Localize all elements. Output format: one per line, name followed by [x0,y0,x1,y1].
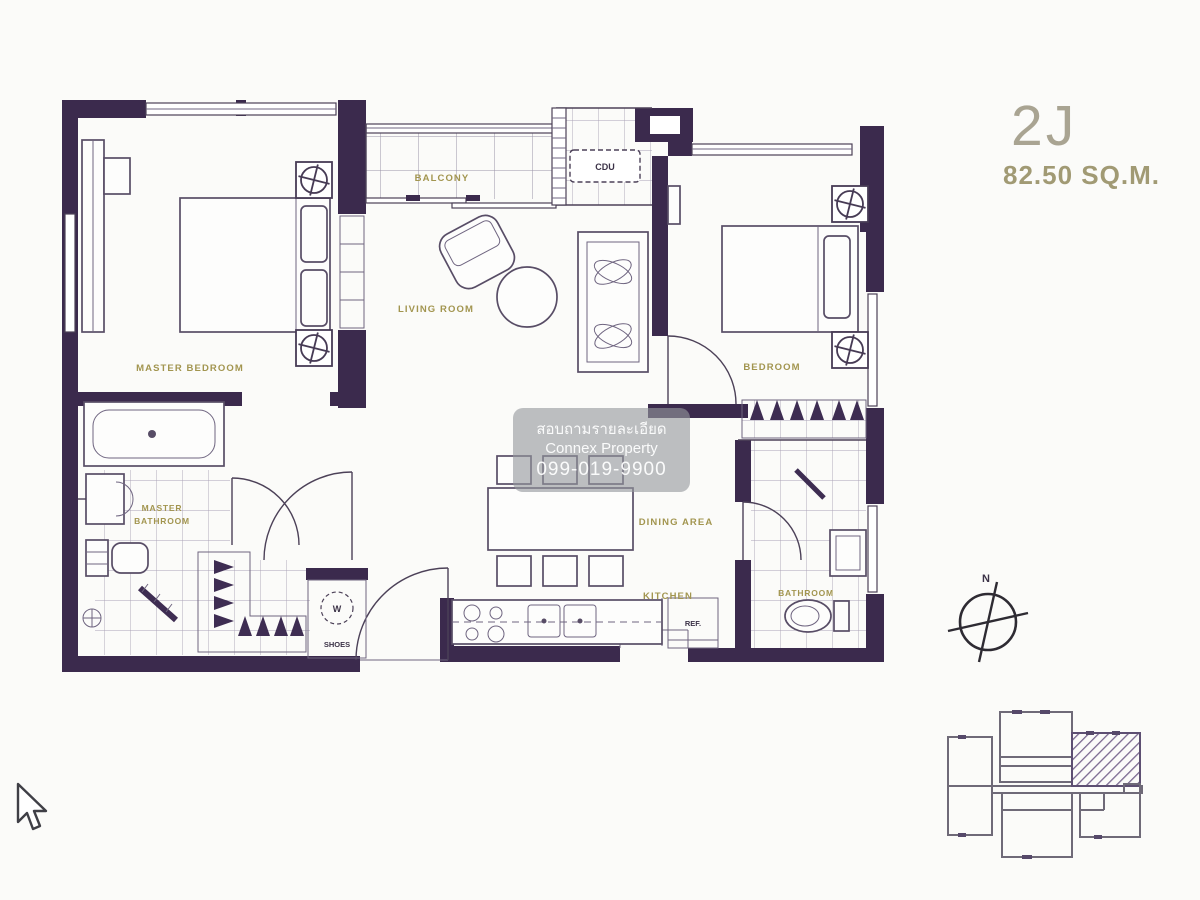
kitchen-counter [452,598,718,648]
floorplan-page: { "title": { "unit": "2J", "area": "82.5… [0,0,1200,900]
room-label-living-room: LIVING ROOM [398,304,474,315]
compass-north-label: N [982,573,990,585]
mouse-cursor-icon [12,780,56,838]
unit-area: 82.50 SQ.M. [1003,160,1193,191]
label-ref: REF. [685,619,701,628]
building-key-plan [948,710,1142,859]
compass-rose: N [948,573,1028,662]
room-label-balcony: BALCONY [415,173,470,184]
watermark-company: Connex Property [545,439,658,458]
room-label-master-bathroom-2: BATHROOM [134,516,190,526]
room-label-dining-area: DINING AREA [639,517,714,528]
room-label-kitchen: KITCHEN [643,591,693,602]
label-shoes: SHOES [324,640,350,649]
watermark-phone: 099-019-9900 [536,458,666,481]
watermark-line-thai: สอบถามรายละเอียด [536,420,666,439]
room-label-master-bathroom-1: MASTER [142,503,183,513]
label-washer: W [333,604,342,614]
watermark: สอบถามรายละเอียด Connex Property 099-019… [513,408,690,492]
bedroom-furniture [668,185,869,370]
living-room-furniture [435,210,648,372]
room-label-bathroom: BATHROOM [778,588,834,598]
room-label-bedroom: BEDROOM [743,362,800,373]
room-label-master-bedroom: MASTER BEDROOM [136,363,244,374]
unit-title-block: 2J 82.50 SQ.M. [1003,96,1193,191]
unit-code: 2J [1003,96,1193,156]
label-cdu: CDU [595,162,615,172]
master-bedroom-furniture [82,140,364,367]
